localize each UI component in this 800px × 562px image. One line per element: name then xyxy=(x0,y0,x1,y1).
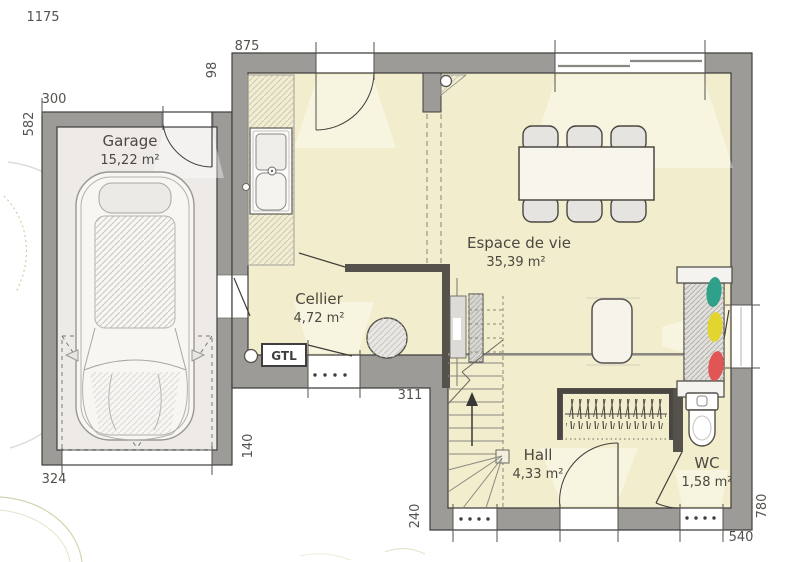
cellier-label: Cellier xyxy=(295,290,343,308)
kitchen xyxy=(243,75,295,265)
car xyxy=(66,172,204,440)
dim-garage-bottom: 324 xyxy=(42,472,67,487)
dim-cellier-bottom: 311 xyxy=(398,388,423,403)
cellier-area: 4,72 m² xyxy=(294,311,345,326)
flush-button xyxy=(697,396,707,406)
dim-right-side: 780 xyxy=(755,494,770,519)
floor-plan-page: GTL xyxy=(0,0,800,562)
garage-label: Garage xyxy=(103,132,158,150)
floor-plan-drawing: GTL xyxy=(0,0,800,562)
sofa xyxy=(677,267,732,397)
kitchen-pillar xyxy=(423,73,441,112)
cellier-window-opening xyxy=(308,355,360,388)
hall-label: Hall xyxy=(524,446,553,464)
toilet xyxy=(686,393,718,446)
car-rear-window xyxy=(99,183,171,213)
kitchen-sink xyxy=(243,128,293,214)
column-post xyxy=(441,76,452,87)
dim-garage-right: 140 xyxy=(241,434,256,459)
cellier-side-wall xyxy=(442,264,450,388)
meter-icon xyxy=(245,350,258,363)
dim-total-width: 1175 xyxy=(26,10,59,25)
cellier-top-wall xyxy=(345,264,450,272)
garage-side-door-opening xyxy=(162,112,213,127)
dim-porch-return: 98 xyxy=(205,62,220,79)
car-roof xyxy=(95,216,175,328)
dim-house-top: 875 xyxy=(235,39,260,54)
garage-door-opening xyxy=(62,450,212,465)
dim-bottom-right: 540 xyxy=(729,530,754,545)
dining-table xyxy=(519,147,654,200)
dim-garage-top: 300 xyxy=(42,92,67,107)
wc-area: 1,58 m² xyxy=(682,475,733,490)
side-table xyxy=(586,298,640,365)
front-door-opening xyxy=(560,508,618,530)
entrance-kitchen-door-opening xyxy=(316,53,374,73)
garage-area: 15,22 m² xyxy=(100,153,159,168)
newel-post xyxy=(496,450,509,463)
living-area: 35,39 m² xyxy=(486,255,545,270)
dim-hall-left: 240 xyxy=(408,504,423,529)
living-label: Espace de vie xyxy=(467,234,571,252)
hall-area: 4,33 m² xyxy=(513,467,564,482)
wc-label: WC xyxy=(694,454,719,472)
sofa-armrest xyxy=(677,267,732,283)
gtl-box: GTL xyxy=(262,344,306,366)
gtl-label: GTL xyxy=(271,349,297,363)
dining-set xyxy=(519,126,654,222)
bay-window-opening xyxy=(555,53,705,73)
water-heater xyxy=(367,318,407,358)
closet-hangers xyxy=(566,399,666,429)
valve-icon xyxy=(243,184,250,191)
dim-garage-left: 582 xyxy=(22,112,37,137)
